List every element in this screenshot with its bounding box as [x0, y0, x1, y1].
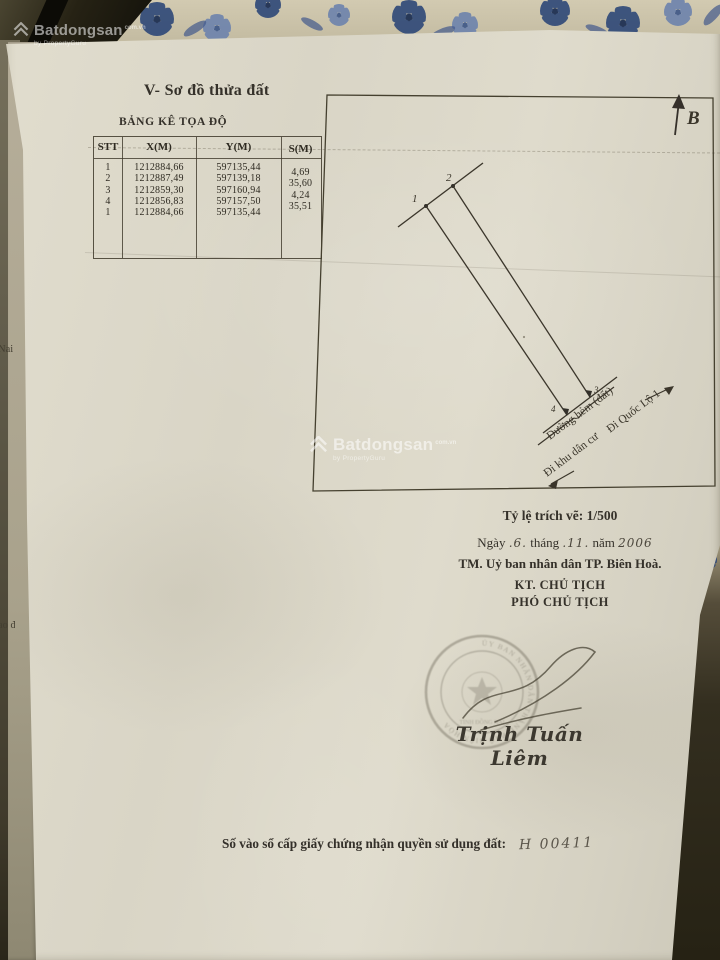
date-word: Ngày	[477, 535, 505, 550]
leaf-motif	[300, 14, 324, 34]
flower-motif	[392, 0, 426, 34]
watermark-domain: com.vn	[435, 440, 456, 446]
north-label: B	[686, 108, 700, 129]
underlying-page-text: ao đất	[0, 620, 15, 631]
table-column-y: 597135,44597139,18597160,94597157,505971…	[196, 162, 281, 218]
parcel-side-14	[426, 206, 567, 415]
table-cell: 2	[94, 173, 122, 184]
coordinate-table-title: BẢNG KÊ TỌA ĐỘ	[119, 116, 227, 128]
table-cell: 1	[94, 162, 122, 173]
watermark: Batdongsancom.vn by PropertyGuru	[308, 436, 456, 462]
flower-motif	[664, 0, 692, 26]
col-header-x: X(M)	[122, 141, 196, 153]
speck	[523, 336, 525, 338]
parcel-side-23	[453, 186, 590, 397]
table-cell: 597157,50	[196, 196, 281, 207]
table-cell: 597160,94	[196, 185, 281, 196]
watermark-brand: Batdongsan	[333, 435, 433, 454]
table-cell: 1212884,66	[122, 162, 196, 173]
diagram-frame	[313, 95, 715, 491]
date-day-handwritten: .6.	[509, 536, 527, 550]
flower-motif	[540, 0, 570, 26]
point-1-label: 1	[412, 193, 418, 205]
flower-motif	[203, 14, 231, 42]
signer-name: Trịnh Tuấn Liêm	[437, 722, 602, 770]
table-border	[94, 158, 321, 159]
boundary-line-12	[398, 163, 483, 227]
table-cell: 4	[94, 196, 122, 207]
coordinate-table: STT X(M) Y(M) S(M) 12341 1212884,6612128…	[93, 136, 322, 259]
col-header-stt: STT	[94, 141, 122, 153]
watermark-sub: by PropertyGuru	[34, 40, 146, 47]
date-year-handwritten: 2006	[618, 536, 653, 550]
table-cell: 597135,44	[196, 207, 281, 218]
land-document-photo: Nai ao đất V- Sơ đồ thửa đất BẢNG KÊ TỌA…	[0, 0, 720, 960]
registry-number-handwritten: H 00411	[519, 835, 595, 854]
registry-label: Số vào sổ cấp giấy chứng nhận quyền sử d…	[222, 836, 506, 851]
date-line: Ngày .6. tháng .11. năm 2006	[415, 535, 715, 551]
col-header-y: Y(M)	[196, 141, 281, 153]
date-word: tháng	[530, 535, 559, 550]
watermark-brand: Batdongsan	[34, 22, 123, 39]
leaf-motif	[700, 3, 720, 27]
watermark-logo-icon	[308, 436, 329, 455]
table-cell: 3	[94, 185, 122, 196]
table-cell: 1212887,49	[122, 173, 196, 184]
deputy-for-title: KT. CHỦ TỊCH	[420, 578, 700, 593]
north-arrow-icon: B	[672, 94, 700, 135]
table-column-stt: 12341	[94, 162, 122, 218]
date-month-handwritten: .11.	[562, 536, 589, 550]
registry-line: Số vào sổ cấp giấy chứng nhận quyền sử d…	[222, 836, 595, 852]
date-word: năm	[593, 535, 615, 550]
table-cell: 1212859,30	[122, 185, 196, 196]
table-column-x: 1212884,661212887,491212859,301212856,83…	[122, 162, 196, 218]
issuer-line: TM. Uỷ ban nhân dân TP. Biên Hoà.	[405, 556, 715, 572]
point-4-label: 4	[551, 404, 556, 414]
section-title: V- Sơ đồ thửa đất	[144, 82, 270, 100]
watermark: Batdongsancom.vn by PropertyGuru	[12, 22, 146, 47]
table-cell: 597139,18	[196, 173, 281, 184]
underlying-page-text: Nai	[0, 344, 15, 355]
flower-motif	[255, 0, 281, 18]
point-2-label: 2	[446, 172, 452, 184]
deputy-title: PHÓ CHỦ TỊCH	[420, 595, 700, 610]
table-cell: 597135,44	[196, 162, 281, 173]
watermark-sub: by PropertyGuru	[333, 455, 456, 462]
table-cell: 1212856,83	[122, 196, 196, 207]
table-cell: 1212884,66	[122, 207, 196, 218]
flower-motif	[328, 4, 350, 26]
table-cell: 1	[94, 207, 122, 218]
watermark-domain: com.vn	[125, 25, 146, 31]
scale-note: Tỷ lệ trích vẽ: 1/500	[420, 508, 700, 524]
watermark-logo-icon	[12, 22, 30, 39]
